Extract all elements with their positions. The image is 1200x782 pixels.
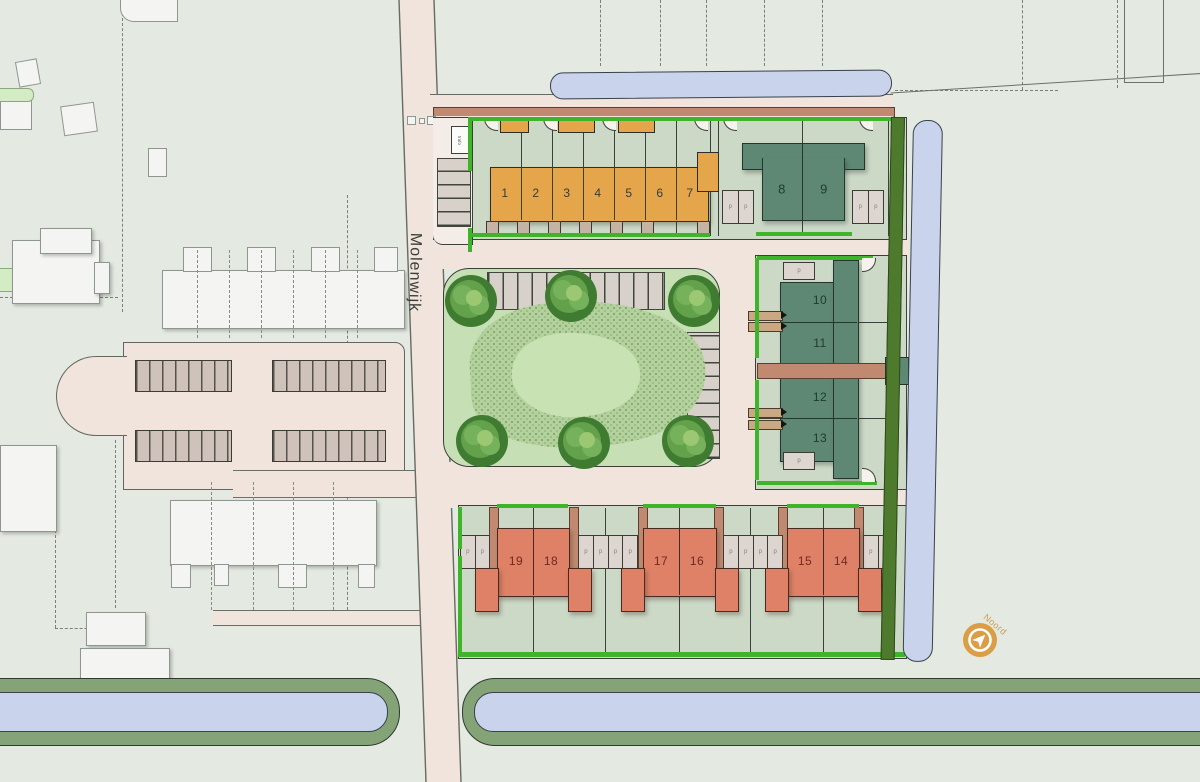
site-plan: Molenwijk trafo 1 2 3 4 5 6 7 8 [0, 0, 1200, 782]
park-overlay-svg [0, 0, 1200, 782]
tree-icon [558, 417, 610, 469]
tree-icon [456, 415, 508, 467]
tree-icon [662, 415, 714, 467]
park-inner-lawn [512, 333, 640, 417]
tree-icon [445, 275, 497, 327]
tree-icon [668, 275, 720, 327]
tree-icon [545, 270, 597, 322]
